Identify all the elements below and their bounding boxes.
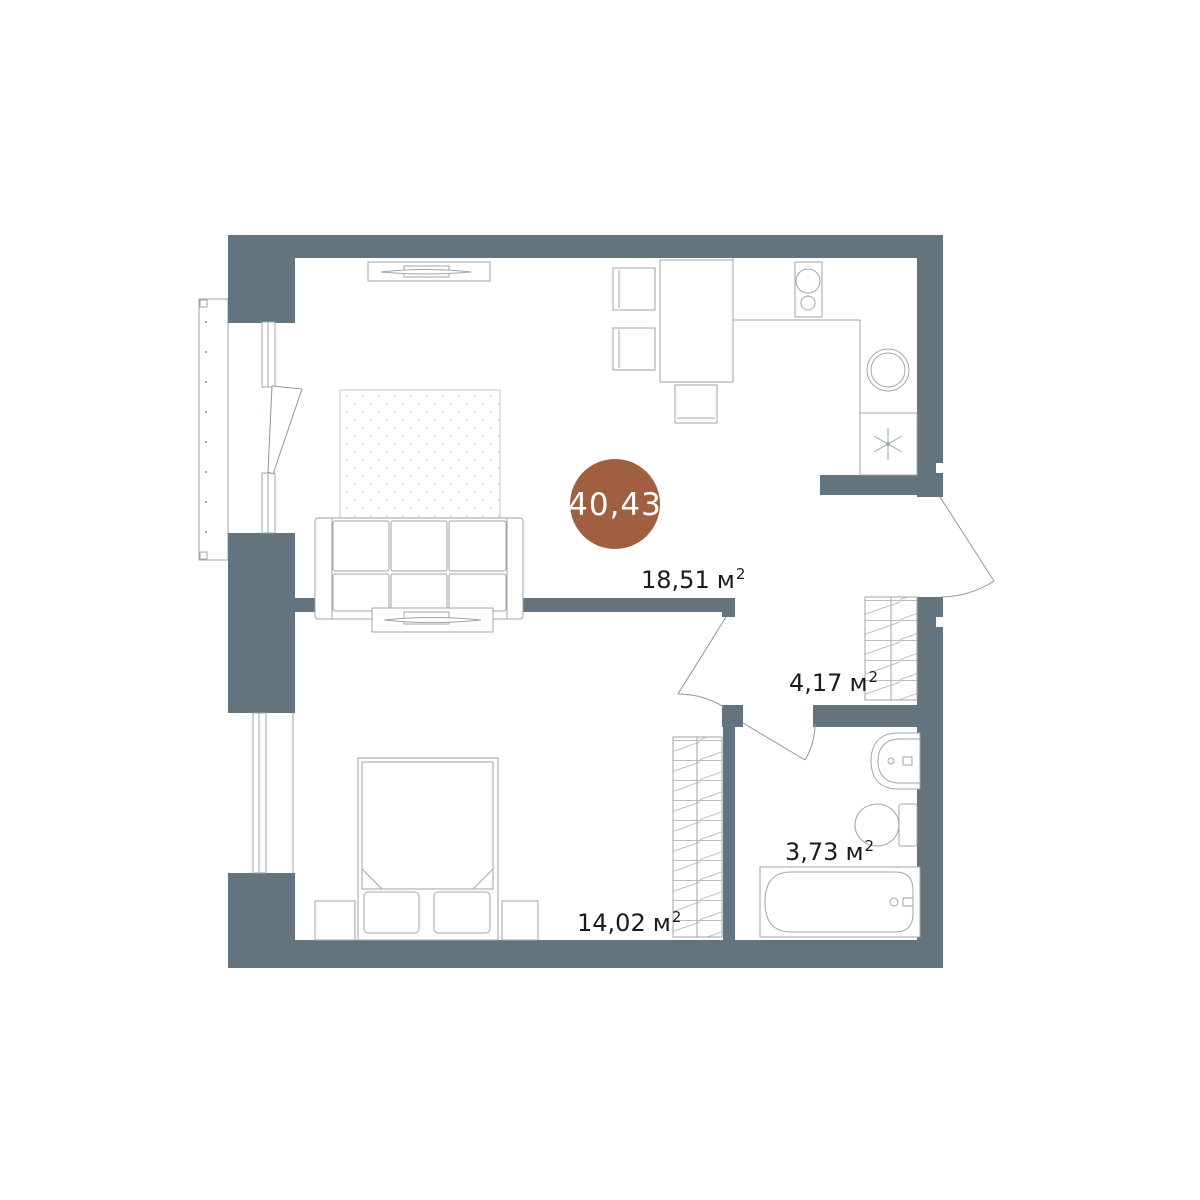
balcony-door-leaf (268, 386, 302, 474)
balcony-corner-bottom (200, 552, 207, 559)
entrance-door-leaf (940, 497, 994, 581)
pillow-right (434, 892, 490, 933)
hallway-area-label: 4,17м2 (789, 668, 878, 697)
wall-top-left-pier (228, 235, 295, 323)
bed-blanket (362, 762, 493, 889)
bathroom-sink-faucet (903, 757, 912, 765)
balcony-slab (199, 299, 228, 560)
bedroom-door-leaf (678, 617, 726, 694)
tv-bedroom (384, 618, 481, 623)
stool (675, 385, 717, 423)
sofa-seat-2 (391, 521, 447, 571)
bathroom-sink-drain (888, 758, 894, 764)
sofa-back-1 (333, 574, 389, 611)
bathroom-door-leaf (743, 723, 805, 760)
bedroom-door-swing (678, 694, 724, 707)
pillow-left (364, 892, 419, 933)
wall-right-upper (917, 235, 943, 497)
wall-top (228, 235, 943, 258)
stove-burner-small (801, 296, 815, 310)
wall-bottom (228, 940, 943, 968)
stove-burner-large (796, 269, 820, 293)
toilet-tank (899, 804, 917, 846)
wall-divider-end-jamb (722, 598, 735, 617)
sofa-seat-1 (333, 521, 389, 571)
floor-plan-canvas: 40,43 18,51м2 4,17м2 14,02м2 3,73м2 (0, 0, 1200, 1200)
bathroom-fixtures (760, 733, 920, 937)
living-room-furniture (315, 262, 523, 619)
balcony-corner-top (200, 300, 207, 307)
bathroom-door-swing (805, 723, 815, 760)
entrance-door-swing (941, 581, 994, 597)
wall-kitchen-hallway-divider (820, 475, 917, 495)
nightstand-left (315, 901, 355, 940)
bedroom-furniture (315, 608, 722, 940)
sofa-back-3 (449, 574, 506, 611)
bedroom-area-label: 14,02м2 (577, 908, 681, 937)
floor-plan: 40,43 18,51м2 4,17м2 14,02м2 3,73м2 (0, 0, 1200, 1200)
wall-right-lower (917, 597, 943, 968)
wall-hallway-bathroom-divider (813, 705, 943, 727)
kitchen-furniture (613, 258, 917, 475)
bathtub-faucet (903, 898, 913, 906)
wall-left-middle-pier (228, 533, 295, 713)
wall-notch-lower (936, 617, 943, 627)
bathroom-area-label: 3,73м2 (785, 837, 874, 866)
dining-table (660, 260, 733, 382)
wall-bedroom-bathroom-divider (723, 707, 735, 940)
living-kitchen-area-label: 18,51м2 (641, 565, 745, 594)
balcony (199, 299, 228, 560)
sofa-seat-3 (449, 521, 506, 571)
total-area-value: 40,43 (568, 487, 662, 523)
nightstand-right (502, 901, 538, 940)
sofa-back-2 (391, 574, 447, 611)
bathtub-drain (890, 898, 898, 906)
rug (340, 390, 500, 525)
wall-notch-upper (936, 463, 943, 473)
kitchen-sink-inner (871, 353, 905, 387)
